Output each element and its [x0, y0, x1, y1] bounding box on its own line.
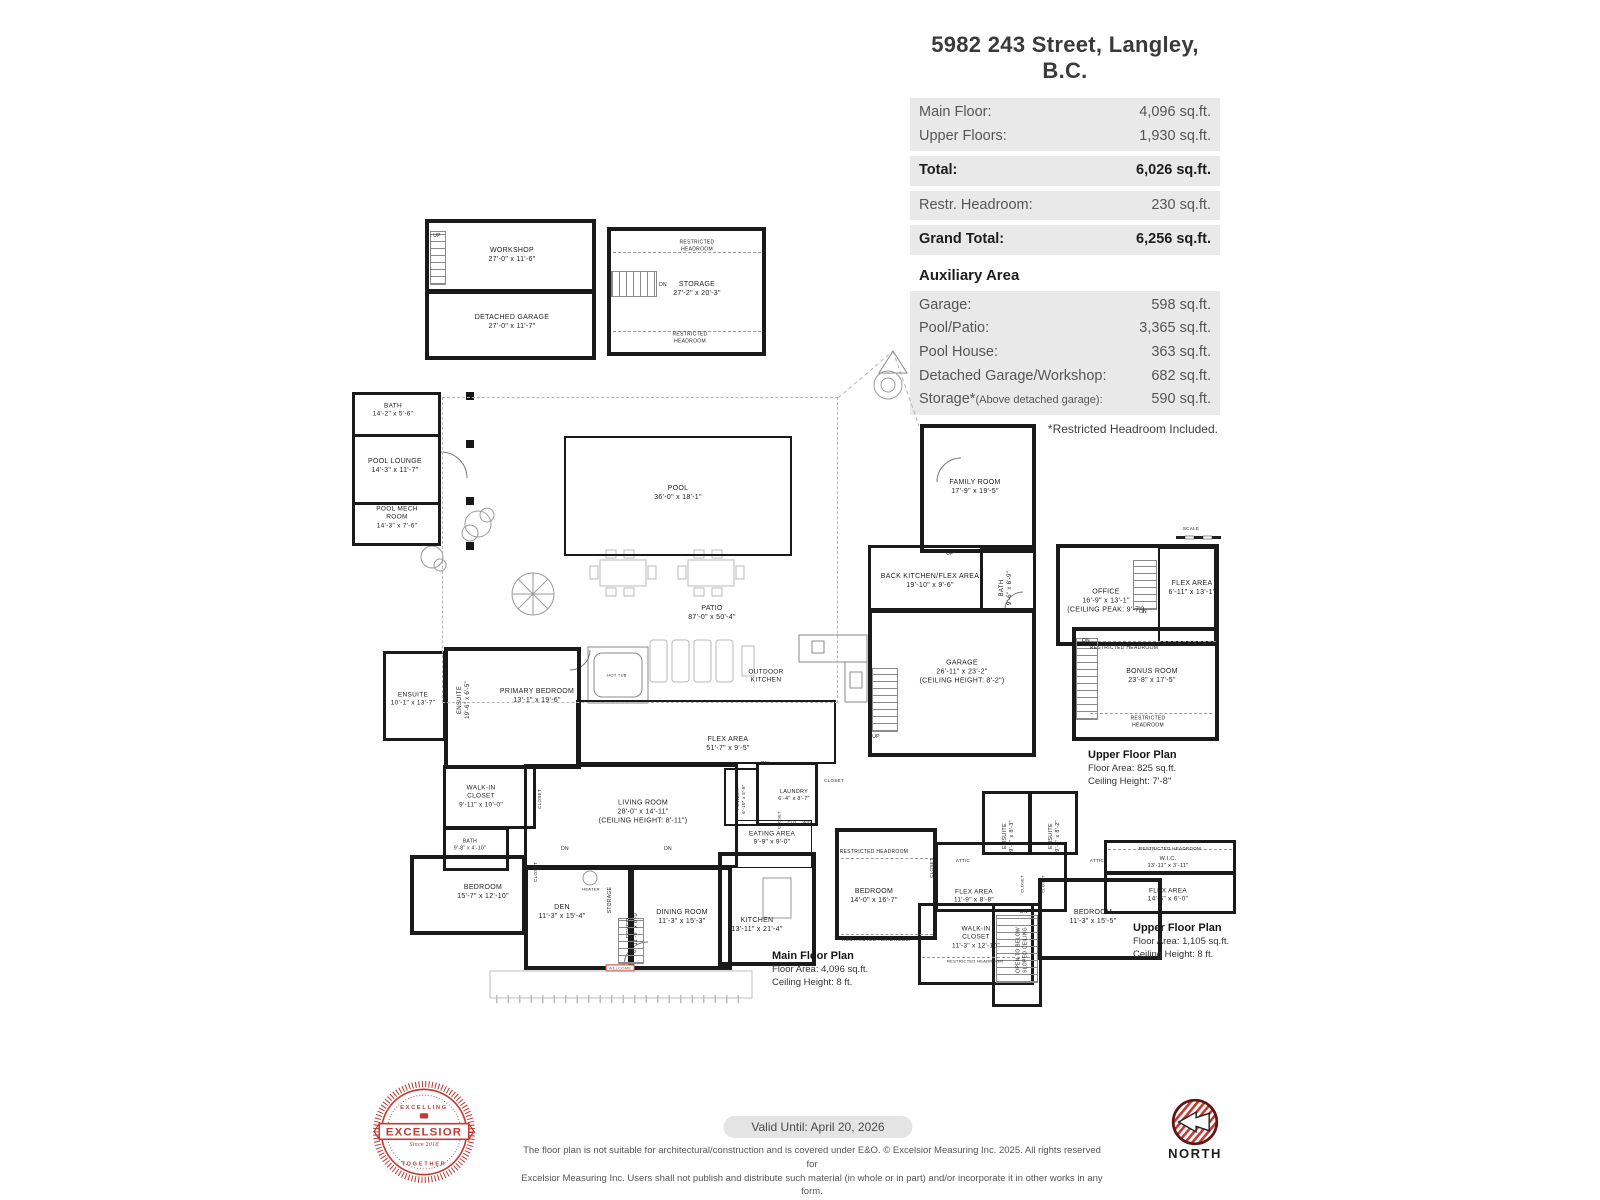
floor-plan-document: 5982 243 Street, Langley, B.C. Main Floo… — [0, 0, 1600, 1200]
room-label: CLOSET — [776, 811, 781, 829]
room-label: ENSUITE9'-8" x 8'-2" — [1048, 820, 1062, 852]
room-label: POOL36'-0" x 18'-1" — [654, 484, 702, 502]
room-label: ENSUITE19'-6" x 6'-5" — [457, 681, 473, 719]
room-label: PATIO87'-0" x 50'-4" — [688, 604, 736, 622]
room-label: EATING AREA9'-9" x 9'-0" — [749, 831, 795, 848]
restricted-headroom-line — [1078, 641, 1216, 642]
room-label: DN — [1020, 909, 1028, 916]
room-label: OUTDOORKITCHEN — [748, 669, 783, 686]
room-label: POOL MECHROOM14'-3" x 7'-6" — [376, 505, 417, 530]
room-label: WORKSHOP27'-0" x 11'-6" — [488, 246, 535, 264]
room-label: W/D — [803, 819, 812, 824]
room-label: BEDROOM14'-0" x 16'-7" — [850, 887, 898, 905]
room-label: HEATER — [582, 886, 600, 891]
room-label: UP — [629, 950, 637, 957]
room-label: RESTRICTED HEADROOM — [842, 937, 910, 944]
room-label: BATH14'-2" x 5'-6" — [373, 403, 414, 420]
room-label: BEDROOM15'-7" x 12'-10" — [457, 883, 509, 901]
room-label: DN — [1139, 609, 1147, 616]
logo-since-text: Since 2018 — [409, 1142, 439, 1148]
truck-icon — [420, 1113, 428, 1118]
room-label: FAMILY ROOM17'-9" x 19'-5" — [949, 478, 1000, 496]
room-label: UP — [433, 233, 441, 240]
room-label: BACK KITCHEN/FLEX AREA19'-10" x 9'-6" — [881, 572, 979, 590]
room-label: GARAGE26'-11" x 23'-2"(CEILING HEIGHT: 8… — [919, 658, 1004, 685]
room-label: STORAGE27'-2" x 20'-3" — [673, 280, 721, 298]
floor-plan: UPWORKSHOP27'-0" x 11'-6"DETACHED GARAGE… — [0, 0, 1600, 1200]
plan-title-block: Main Floor PlanFloor Area: 4,096 sq.ft.C… — [772, 949, 868, 989]
room-label: WELCOME — [606, 964, 635, 971]
room-label: BATH9'-8" x 4'-10" — [454, 839, 486, 852]
room-label: HOT TUB — [607, 672, 627, 677]
room-label: CLO — [787, 819, 796, 824]
room-label: W.I.C.13'-11" x 3'-11" — [1148, 856, 1189, 870]
room-label: DINING ROOM11'-3" x 15'-3" — [656, 908, 708, 926]
room-label: OPEN TO BELOWSLOPED CEILING — [1016, 927, 1029, 973]
room-label: ENSUITE9'-8" x 8'-3" — [1002, 820, 1016, 852]
room-label: LIVING ROOM28'-0" x 14'-11"(CEILING HEIG… — [599, 798, 688, 825]
disclaimer-line-1: The floor plan is not suitable for archi… — [517, 1144, 1107, 1172]
room-label: CLOSET — [824, 778, 844, 784]
north-arrow-icon — [1171, 1098, 1219, 1146]
room-label: POWDER6'-10" x 5'-8" — [735, 784, 747, 813]
stairs — [872, 668, 898, 732]
room-label: RESTRICTED HEADROOM — [947, 958, 1003, 963]
room-label: OFFICE16'-9" x 13'-1"(CEILING PEAK: 9'-7… — [1067, 587, 1144, 614]
room-label: RESTRICTEDHEADROOM — [680, 240, 715, 253]
disclaimer-line-2: Excelsior Measuring Inc. Users shall not… — [517, 1172, 1107, 1200]
room-label: FOYER11'-9" x 8'-0" — [626, 911, 640, 946]
room-label: FLEX AREA6'-11" x 13'-1" — [1168, 579, 1215, 597]
room-label: CLOSET — [1040, 875, 1045, 893]
restricted-headroom-line — [841, 858, 933, 859]
wall — [442, 397, 838, 703]
room-label: RESTRICTED HEADROOM — [1139, 846, 1201, 852]
room-label: RESTRICTEDHEADROOM — [673, 332, 708, 345]
room-label: WALK-INCLOSET11'-3" x 12'-10" — [952, 925, 1000, 950]
logo-bottom-text: TOGETHER — [402, 1161, 447, 1167]
room-label: CLOSET — [537, 789, 543, 809]
porch-colonnade — [490, 971, 752, 999]
room-label: DN — [1082, 638, 1090, 645]
valid-until-badge: Valid Until: April 20, 2026 — [723, 1116, 912, 1138]
north-label: NORTH — [1168, 1146, 1222, 1161]
room-label: DN — [561, 846, 569, 853]
room-label: BONUS ROOM23'-8" x 17'-5" — [1126, 667, 1178, 685]
room-label: ATTIC — [956, 858, 970, 864]
room-label: FLEX AREA14'-6" x 6'-0" — [1148, 888, 1189, 905]
room-label: DN — [761, 761, 769, 768]
logo-main-text: EXCELSIOR — [386, 1127, 462, 1139]
room-label: SCALE — [1183, 526, 1199, 532]
scale-bar — [1176, 536, 1221, 539]
room-label: ENSUITE10'-1" x 13'-7" — [391, 692, 435, 709]
room-label: CLOSET — [929, 858, 935, 878]
room-label: KITCHEN13'-11" x 21'-4" — [731, 916, 782, 934]
room-label: LAUNDRY6'-4" x 8'-7" — [778, 789, 810, 803]
logo-top-text: EXCELLING — [400, 1105, 448, 1111]
room-label: DEN11'-3" x 15'-4" — [538, 903, 585, 921]
room-label: FLEX AREA51'-7" x 9'-5" — [706, 735, 749, 753]
stairs — [611, 271, 657, 297]
room-label: BEDROOM11'-3" x 15'-5" — [1069, 908, 1116, 926]
room-label: WALK-INCLOSET9'-11" x 10'-0" — [459, 784, 503, 809]
plan-title-block: Upper Floor PlanFloor Area: 1,105 sq.ft.… — [1133, 921, 1229, 961]
wall — [576, 700, 836, 764]
room-label: CLOSET — [533, 862, 539, 882]
room-label: POOL LOUNGE14'-3" x 11'-7" — [368, 457, 422, 475]
restricted-headroom-line — [841, 934, 933, 935]
room-label: RESTRICTED HEADROOM — [1090, 645, 1158, 652]
room-label: RESTRICTED HEADROOM — [840, 849, 908, 856]
excelsior-logo: EXCELLING EXCELSIOR Since 2018 TOGETHER — [372, 1080, 476, 1184]
room-label: STORAGE — [607, 887, 614, 913]
room-label: ATTIC — [1090, 858, 1104, 864]
room-label: RESTRICTEDHEADROOM — [1131, 716, 1166, 729]
restricted-headroom-line — [1090, 713, 1212, 714]
disclaimer: The floor plan is not suitable for archi… — [517, 1144, 1107, 1199]
room-label: BATH9'-6" x 6'-9" — [999, 571, 1015, 605]
room-label: UP — [872, 734, 880, 741]
room-label: CLOSET — [1019, 875, 1024, 893]
room-label: UP — [946, 551, 954, 558]
room-label: PRIMARY BEDROOM13'-1" x 19'-6" — [500, 687, 574, 705]
room-label: DN — [664, 846, 672, 853]
room-label: FLEX AREA11'-9" x 8'-8" — [954, 889, 994, 906]
room-label: DETACHED GARAGE27'-0" x 11'-7" — [475, 313, 549, 331]
room-label: DN — [659, 282, 667, 289]
plan-title-block: Upper Floor PlanFloor Area: 825 sq.ft.Ce… — [1088, 748, 1177, 788]
